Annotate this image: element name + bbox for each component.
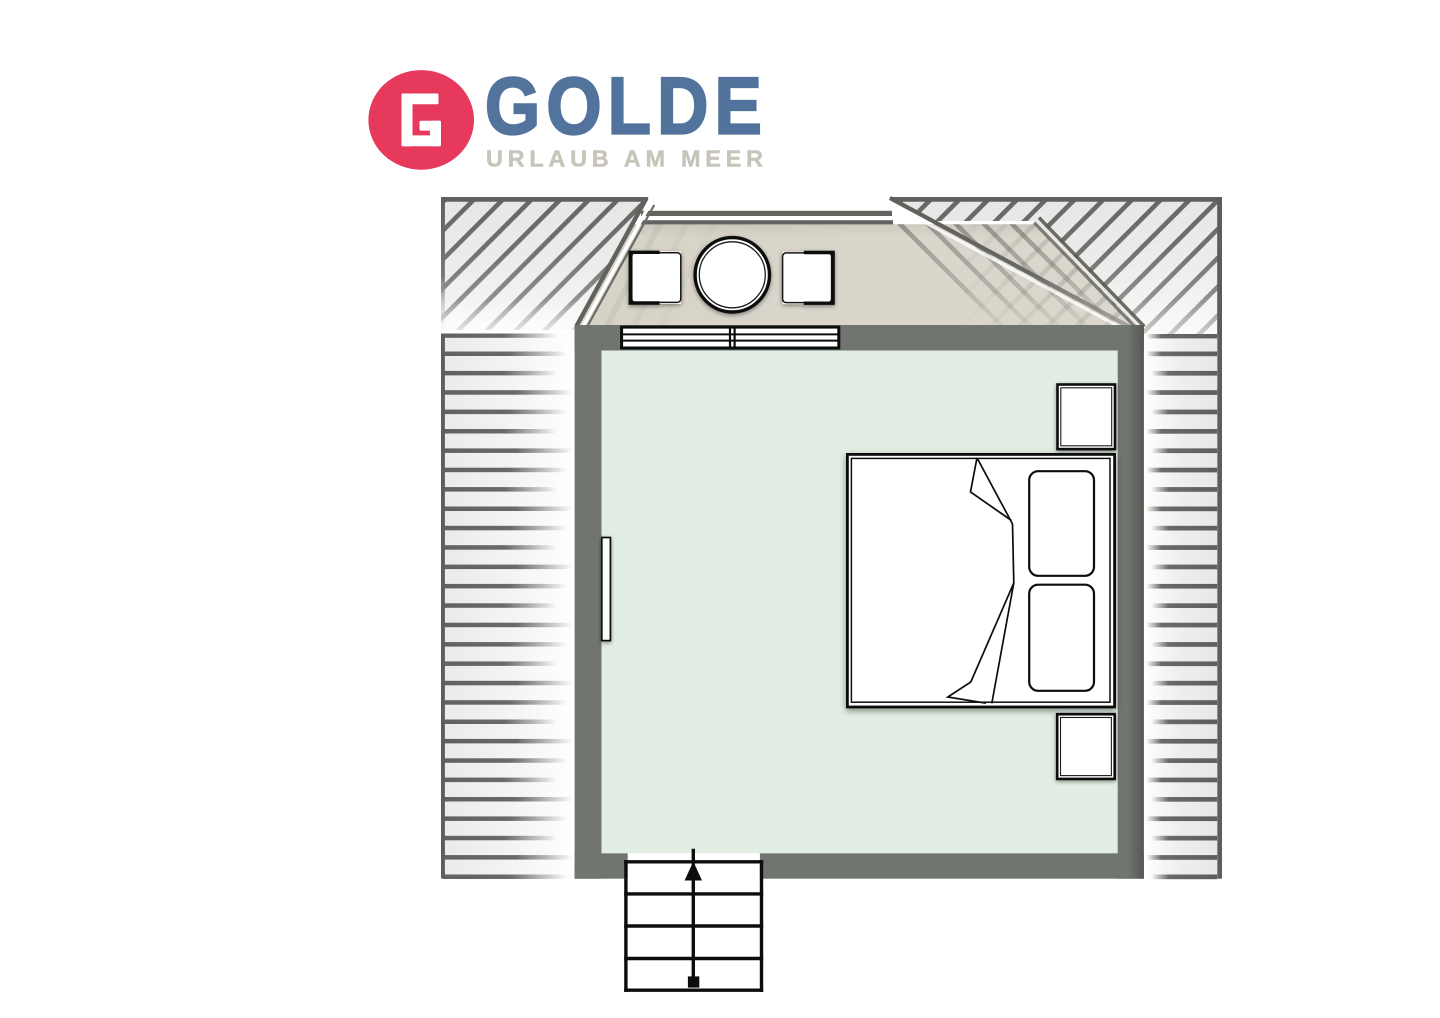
svg-text:GOLDE: GOLDE [485, 62, 768, 152]
